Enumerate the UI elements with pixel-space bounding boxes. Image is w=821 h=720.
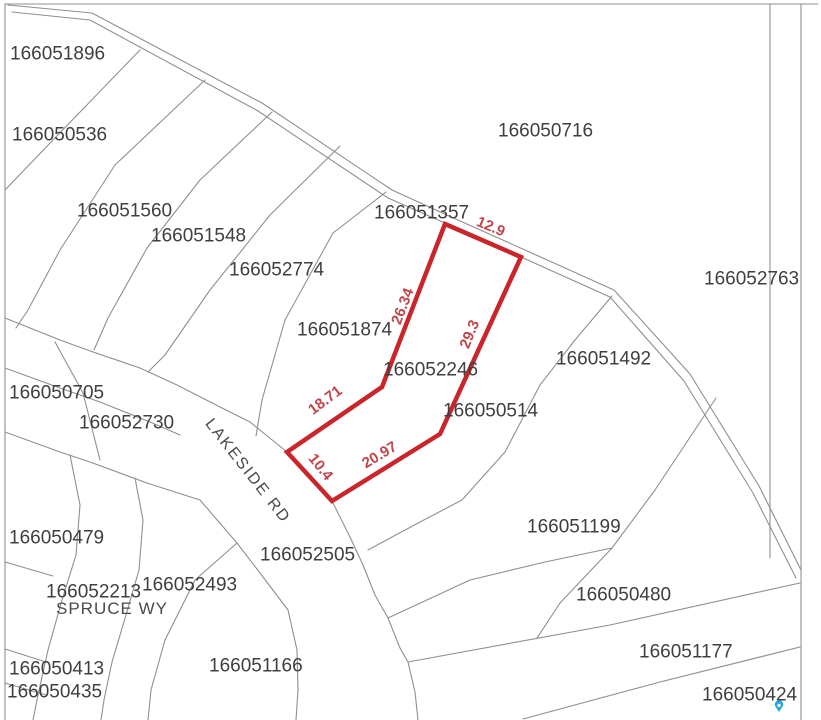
lot-line-2493: [148, 543, 237, 720]
parcel-label-166052763: 166052763: [704, 269, 799, 290]
parcel-label-166050514: 166050514: [443, 401, 539, 422]
parcel-label-166050479: 166050479: [9, 528, 104, 549]
parcel-label-166051166: 166051166: [209, 656, 303, 677]
parcel-label-166050413: 166050413: [9, 659, 104, 680]
parcel-label-166051548: 166051548: [151, 226, 246, 247]
parcel-label-166050716: 166050716: [498, 121, 593, 142]
parcel-label-166051560: 166051560: [77, 201, 172, 222]
location-pin-icon[interactable]: [775, 700, 783, 712]
parcel-label-166052730: 166052730: [79, 413, 174, 434]
parcel-label-166051896: 166051896: [10, 44, 105, 65]
parcel-label-166051874: 166051874: [297, 320, 393, 341]
parcel-label-166052774: 166052774: [229, 260, 325, 281]
parcel-label-166051199: 166051199: [527, 517, 621, 538]
parcel-label-166050536: 166050536: [12, 125, 107, 146]
parcel-label-166052505: 166052505: [260, 545, 355, 566]
parcel-label-166050705: 166050705: [9, 383, 104, 404]
lot-line-479-south: [5, 562, 53, 576]
map-canvas[interactable]: 12.926.3429.318.7120.9710.41660518961660…: [0, 0, 821, 720]
parcel-label-166051492: 166051492: [556, 349, 651, 370]
lot-line-p1: [5, 50, 140, 190]
parcel-label-166052493: 166052493: [142, 575, 237, 596]
parcel-label-166051177: 166051177: [639, 642, 733, 663]
dimension-label: 18.71: [305, 382, 345, 418]
street-label-spruce-wy: SPRUCE WY: [56, 599, 168, 618]
parcel-label-166052246: 166052246: [383, 360, 478, 381]
parcel-label-166050435: 166050435: [7, 682, 102, 703]
street-label-lakeside-rd: LAKESIDE RD: [202, 416, 294, 527]
parcel-label-166050424: 166050424: [702, 685, 798, 706]
dimension-label: 20.97: [359, 438, 400, 472]
parcel-label-166050480: 166050480: [576, 585, 671, 606]
parcel-map[interactable]: 12.926.3429.318.7120.9710.41660518961660…: [0, 0, 821, 720]
parcel-label-166051357: 166051357: [374, 203, 469, 224]
